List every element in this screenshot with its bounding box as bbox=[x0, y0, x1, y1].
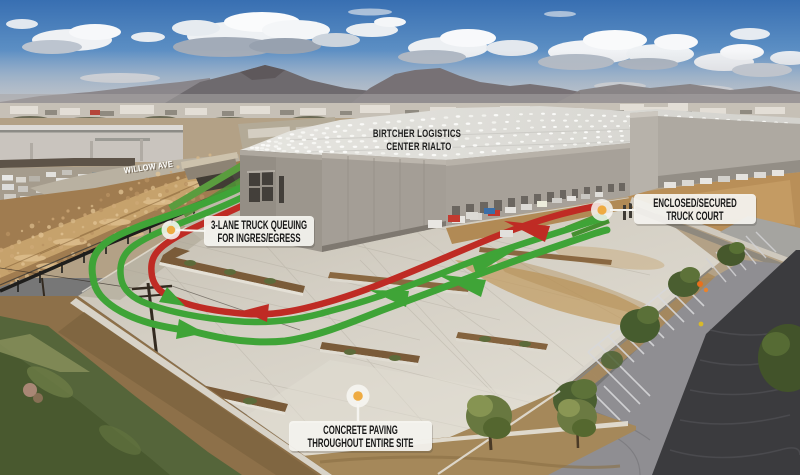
svg-text:TRUCK COURT: TRUCK COURT bbox=[666, 211, 724, 224]
svg-text:CENTER RIALTO: CENTER RIALTO bbox=[386, 141, 451, 154]
svg-text:ENCLOSED/SECURED: ENCLOSED/SECURED bbox=[653, 198, 737, 211]
svg-text:FOR INGRES/EGRESS: FOR INGRES/EGRESS bbox=[217, 233, 300, 246]
svg-text:CONCRETE PAVING: CONCRETE PAVING bbox=[323, 425, 398, 438]
svg-text:THROUGHOUT ENTIRE SITE: THROUGHOUT ENTIRE SITE bbox=[307, 438, 413, 451]
svg-text:BIRTCHER LOGISTICS: BIRTCHER LOGISTICS bbox=[373, 128, 461, 141]
svg-text:3-LANE TRUCK QUEUING: 3-LANE TRUCK QUEUING bbox=[211, 220, 307, 233]
